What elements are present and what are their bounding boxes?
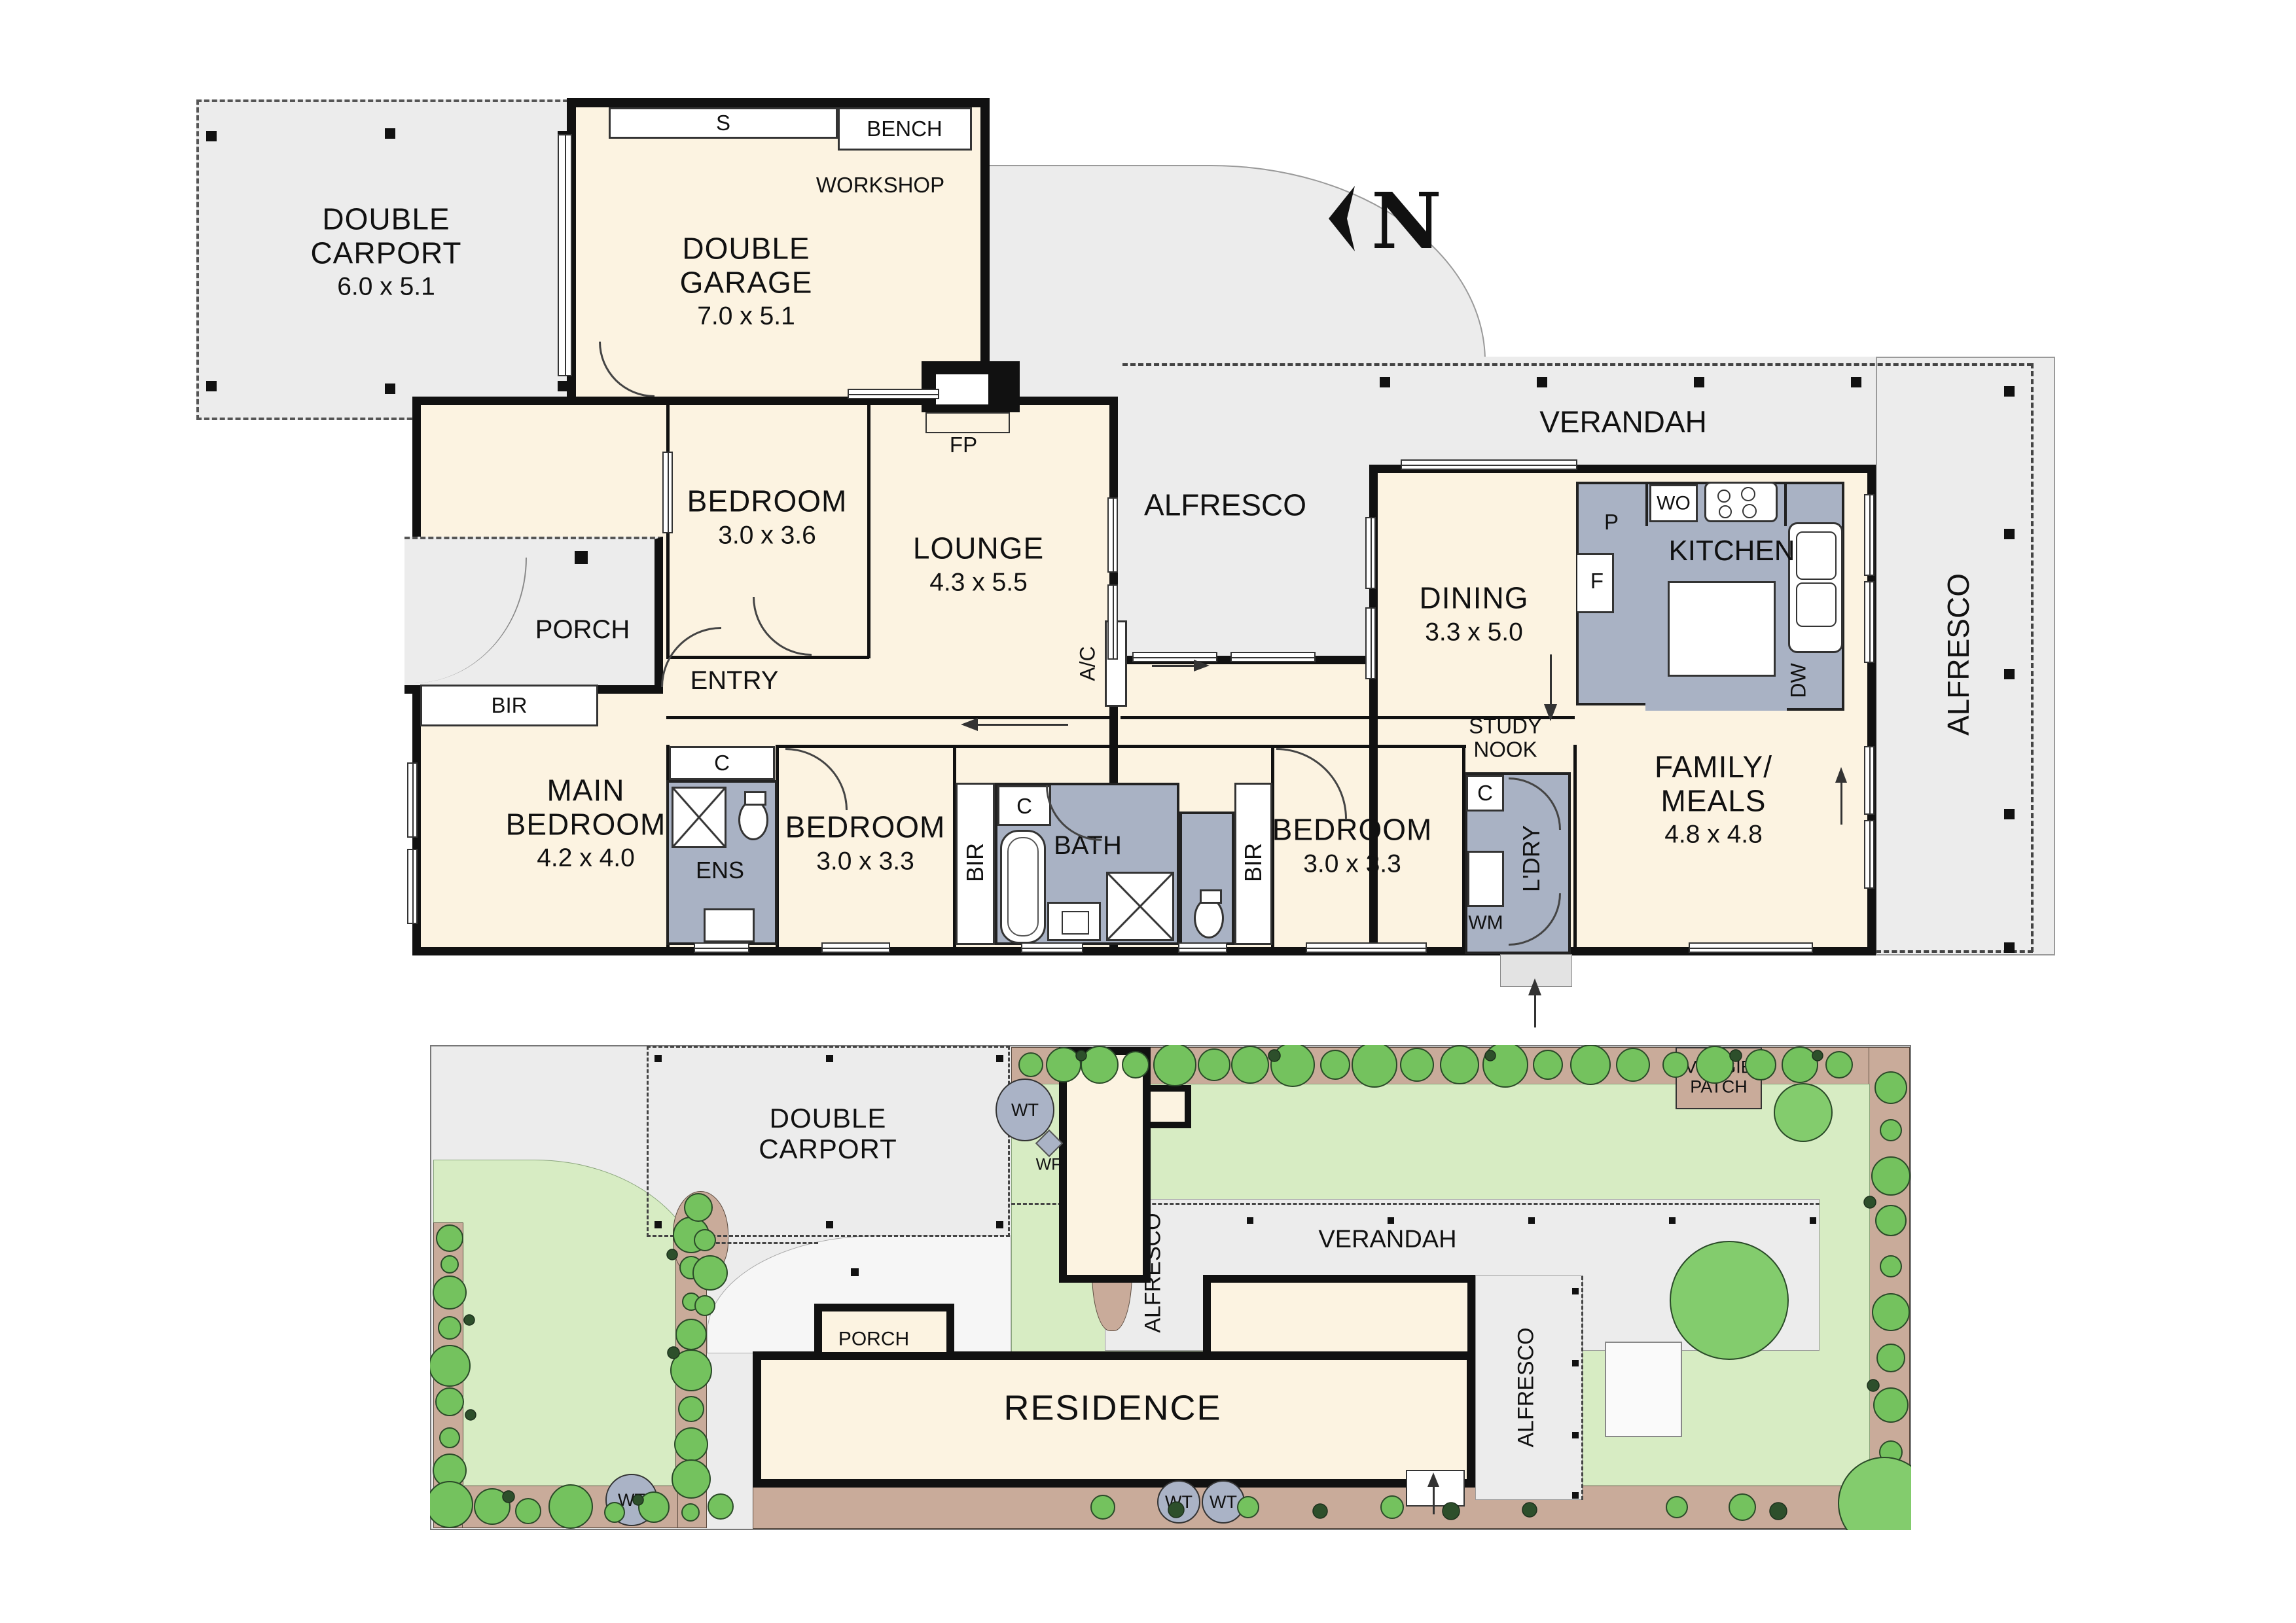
family-arrow-line — [1550, 654, 1552, 705]
alfresco-arrow-head — [1194, 660, 1210, 671]
alfresco-right-label: ALFRESCO — [1941, 573, 1976, 736]
carport-post — [385, 383, 395, 394]
wo-label: WO — [1657, 493, 1691, 514]
burner — [1741, 487, 1755, 501]
sink-basin — [1796, 531, 1837, 580]
verandah-post — [1851, 377, 1861, 387]
north-label: N — [1371, 175, 1442, 266]
window — [1178, 942, 1227, 953]
ens-shower — [672, 787, 726, 848]
alfresco-roofline — [2031, 363, 2034, 952]
window — [407, 849, 418, 924]
c-ldry-label: C — [1477, 781, 1493, 805]
window — [1864, 581, 1874, 663]
wall — [1573, 745, 1577, 955]
carport-post — [206, 381, 217, 391]
ens-vanity — [704, 908, 755, 942]
family-window-arrow — [1840, 780, 1842, 825]
cooktop — [1704, 482, 1778, 522]
carport-post — [385, 128, 395, 139]
alfresco-post — [2004, 942, 2015, 953]
window — [1306, 942, 1427, 953]
burner — [1719, 505, 1732, 518]
bench-label: BENCH — [867, 117, 942, 141]
bath-shower — [1106, 872, 1174, 941]
hall-arrow-line — [977, 724, 1068, 726]
alfresco-post — [2004, 669, 2015, 679]
window — [1864, 746, 1874, 815]
alfresco-post — [2004, 529, 2015, 539]
window — [821, 942, 890, 953]
verandah-roofline — [1122, 363, 2032, 366]
dining-label: DINING3.3 x 5.0 — [1420, 581, 1529, 646]
garage-label: DOUBLE GARAGE7.0 x 5.1 — [680, 232, 813, 331]
bir-left-label: BIR — [961, 843, 989, 882]
kitchen-label: KITCHEN — [1668, 535, 1795, 567]
window — [1864, 820, 1874, 889]
bir-main-label: BIR — [491, 694, 527, 717]
garage-roller-door — [558, 134, 572, 376]
bedroom1-label: BEDROOM3.0 x 3.6 — [687, 484, 848, 549]
study-nook-label: STUDY NOOK — [1469, 715, 1542, 762]
ldry-trough — [1467, 851, 1504, 907]
porch-label: PORCH — [535, 615, 630, 644]
family-window-arrow-head — [1835, 767, 1847, 783]
wall — [867, 399, 870, 658]
verandah-post — [1694, 377, 1704, 387]
hall-arrow-head — [961, 718, 978, 731]
wall — [666, 716, 1118, 719]
window — [1365, 607, 1376, 679]
alfresco-post — [2004, 809, 2015, 819]
window — [1107, 584, 1118, 660]
burner — [1742, 504, 1757, 518]
site-vegetation — [430, 1045, 1911, 1530]
floorplan-canvas: DOUBLE CARPORT6.0 x 5.1 S BENCH WORKSHOP… — [0, 0, 2296, 1623]
carport-label: DOUBLE CARPORT6.0 x 5.1 — [310, 203, 461, 302]
alfresco-post — [2004, 386, 2015, 397]
fireplace-inner — [936, 374, 988, 404]
ldry-arrow-line — [1534, 991, 1536, 1027]
workshop-label: WORKSHOP — [816, 173, 944, 197]
ac-label: A/C — [1076, 646, 1100, 681]
fireplace-hearth — [925, 412, 1010, 433]
window — [848, 389, 939, 399]
wm-label: WM — [1468, 912, 1503, 934]
porch-post — [575, 551, 588, 564]
alfresco-mid-label: ALFRESCO — [1144, 489, 1306, 522]
sink-basin — [1796, 582, 1837, 627]
window — [1689, 942, 1813, 953]
wc-toilet — [1194, 898, 1224, 938]
bedroom3-label: BEDROOM3.0 x 3.3 — [1272, 813, 1433, 878]
ens-toilet — [738, 800, 768, 840]
c-bath-label: C — [1016, 794, 1032, 818]
ldry-arrow-head — [1528, 978, 1541, 995]
window — [1230, 652, 1316, 662]
window — [694, 942, 749, 953]
window — [407, 762, 418, 838]
ens-label: ENS — [696, 857, 744, 883]
p-label: P — [1604, 510, 1619, 534]
family-arrow-head — [1544, 704, 1557, 721]
verandah-post — [1537, 377, 1547, 387]
verandah-label: VERANDAH — [1539, 406, 1707, 439]
lounge-label: LOUNGE4.3 x 5.5 — [913, 531, 1044, 596]
carport-post — [206, 131, 217, 141]
bath-basin — [1062, 911, 1089, 935]
c-ens-label: C — [714, 751, 730, 775]
window — [1021, 942, 1083, 953]
window — [1864, 494, 1874, 576]
bir-right-label: BIR — [1240, 843, 1267, 882]
bathtub — [1000, 830, 1046, 944]
window — [662, 452, 673, 533]
main-bedroom-label: MAIN BEDROOM4.2 x 4.0 — [506, 774, 666, 873]
kitchen-island — [1668, 581, 1776, 677]
window — [1107, 497, 1118, 573]
burner — [1717, 490, 1731, 503]
fp-label: FP — [950, 433, 977, 457]
window — [1365, 517, 1376, 589]
f-label: F — [1590, 569, 1604, 593]
verandah-post — [1380, 377, 1390, 387]
alfresco-arrow-line — [1152, 665, 1195, 667]
entry-label: ENTRY — [691, 666, 779, 695]
storage-label: S — [716, 111, 730, 135]
dw-label: DW — [1787, 663, 1811, 698]
wall — [776, 745, 1466, 748]
window — [1401, 459, 1577, 470]
bedroom2-label: BEDROOM3.0 x 3.3 — [785, 810, 946, 875]
family-label: FAMILY/ MEALS4.8 x 4.8 — [1655, 751, 1772, 849]
ldry-label: L'DRY — [1518, 825, 1545, 892]
